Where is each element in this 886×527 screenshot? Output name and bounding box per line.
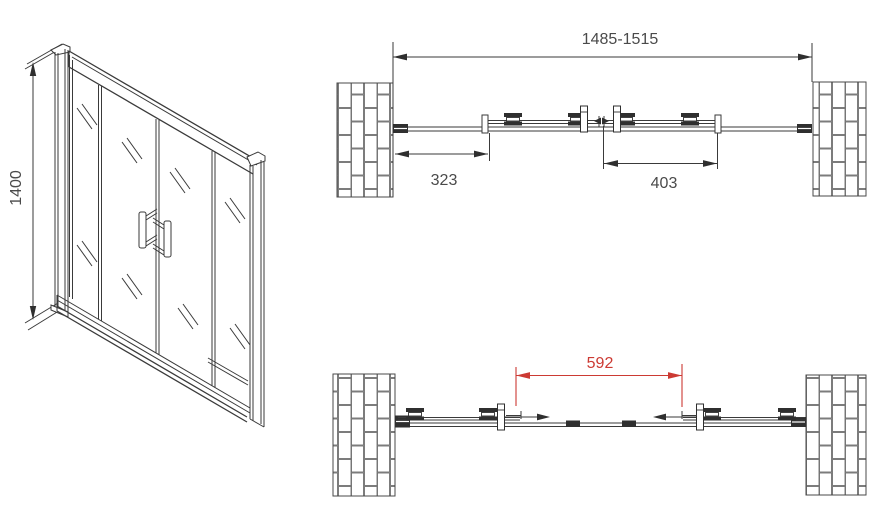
roller-assembly — [479, 408, 497, 421]
door-handles — [139, 209, 171, 257]
brick-wall-left — [337, 83, 393, 197]
left-pull-handle — [139, 209, 157, 248]
track-stopper — [566, 421, 580, 428]
arrow-right-icon — [703, 160, 717, 167]
plan-handle-right — [697, 404, 704, 430]
arrow-left-icon — [395, 151, 409, 158]
wall-profile-post — [51, 44, 70, 317]
arrow-up-icon — [30, 62, 36, 76]
plan-view-closed: 1485-1515 — [337, 31, 866, 197]
arrow-left-icon — [604, 160, 618, 167]
left-section-dimension: 323 — [395, 133, 490, 189]
roller-assembly — [703, 408, 721, 421]
plan-view-open: 592 — [333, 355, 866, 496]
arrow-left-icon — [393, 54, 407, 61]
roller-assembly — [504, 113, 522, 126]
roller-assembly — [778, 408, 796, 421]
roller-assembly — [681, 113, 699, 126]
door-frame — [57, 51, 265, 427]
arrow-right-icon — [668, 372, 682, 379]
brick-wall-right — [806, 375, 866, 495]
height-dimension-label: 1400 — [8, 170, 25, 206]
door-panel-dimension: 403 — [604, 126, 718, 192]
opening-dimension: 592 — [516, 355, 682, 407]
front-isometric-view: 1400 — [8, 44, 265, 427]
panel-connector-left — [482, 115, 488, 133]
arrow-down-icon — [30, 306, 36, 320]
plan-handle-right — [614, 106, 621, 132]
arrow-left-icon — [516, 372, 530, 379]
brick-wall-right — [813, 82, 866, 196]
opening-width-label: 592 — [587, 355, 614, 372]
plan-handle-left — [581, 106, 588, 132]
slide-direction-arrow-icon — [653, 414, 666, 421]
track-assembly-closed — [393, 106, 812, 133]
total-width-label: 1485-1515 — [582, 31, 659, 48]
track-stopper — [622, 421, 636, 428]
arrow-right-icon — [474, 151, 488, 158]
total-width-dimension: 1485-1515 — [393, 31, 812, 60]
slide-direction-arrow-icon — [537, 414, 550, 421]
roller-assembly — [406, 408, 424, 421]
panel-connector-right — [715, 115, 721, 133]
track-assembly-open — [395, 404, 806, 430]
left-section-label: 323 — [431, 172, 458, 189]
door-panel-label: 403 — [651, 175, 678, 192]
technical-drawing-page: 1400 — [0, 0, 886, 527]
height-dimension: 1400 — [8, 44, 62, 330]
brick-wall-left — [333, 374, 395, 496]
plan-handle-left — [498, 404, 505, 430]
shower-door-technical-drawing: 1400 — [0, 0, 886, 527]
arrow-right-icon — [798, 54, 812, 61]
